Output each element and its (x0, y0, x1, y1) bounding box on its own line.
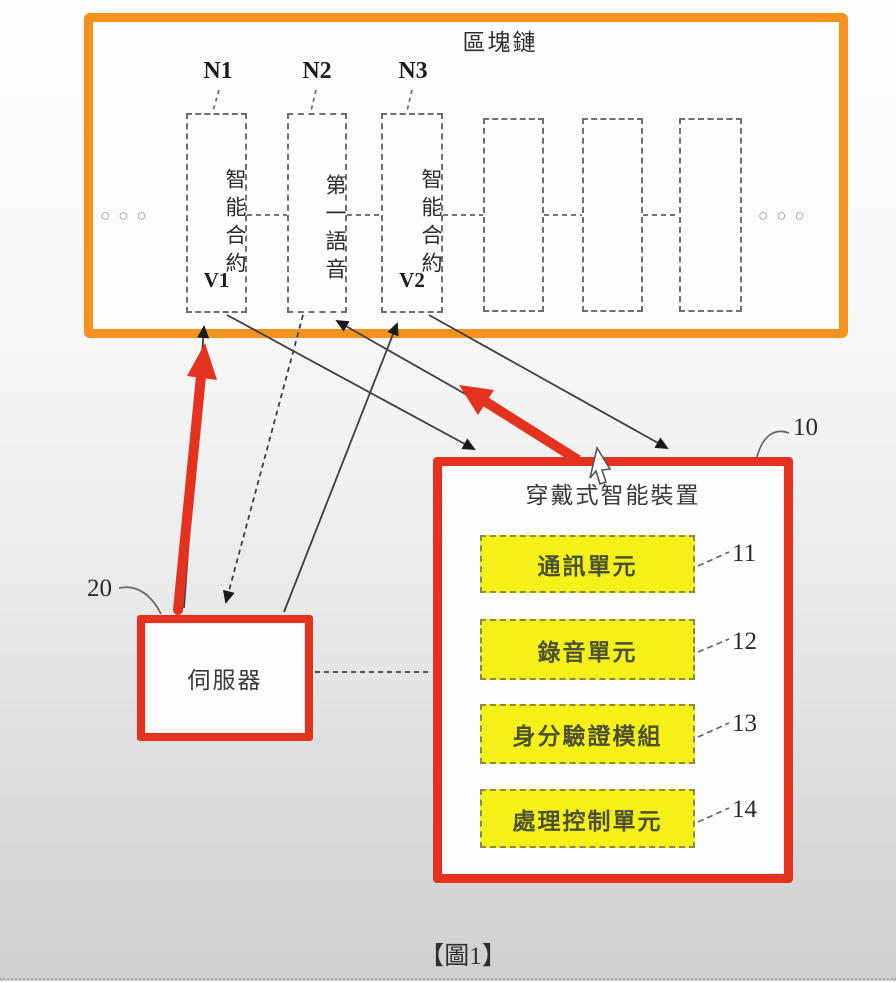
block-empty-1 (483, 118, 544, 312)
flow-device-to-n2 (337, 321, 576, 457)
block-n1-version: V1 (188, 268, 245, 293)
server-ref-20: 20 (87, 575, 112, 603)
chain-ellipsis-left: ○○○ (100, 206, 155, 226)
unit-communication: 通訊單元 (480, 535, 695, 593)
flow-server-to-n1 (184, 327, 204, 608)
unit-ref-14: 14 (732, 796, 757, 824)
node-label-n2: N2 (294, 58, 340, 85)
red-annotation-arrow-server-to-n1 (178, 343, 217, 610)
flow-n2-to-server (226, 315, 303, 602)
unit-ref-11: 11 (732, 540, 756, 568)
leader-10 (757, 431, 789, 457)
block-n3-version: V2 (383, 268, 441, 293)
figure-caption: 【圖1】 (408, 936, 518, 972)
server-box: 伺服器 (137, 615, 313, 741)
block-empty-3 (679, 118, 742, 312)
unit-ref-12: 12 (732, 628, 757, 656)
patent-figure: 區塊鏈 N1 N2 N3 智能合約 V1 第一語音 智能合約 V2 ○○○ ○○… (0, 0, 896, 981)
flow-server-to-n3 (284, 324, 397, 612)
leader-20 (119, 587, 161, 614)
unit-identity-verification: 身分驗證模組 (480, 704, 695, 764)
block-n2-first-voice: 第一語音 (287, 113, 347, 313)
wearable-device-title: 穿戴式智能裝置 (433, 476, 793, 510)
unit-processing-control: 處理控制單元 (480, 789, 695, 848)
red-annotation-arrow-device-to-chain (459, 385, 578, 460)
device-ref-10: 10 (793, 414, 818, 442)
chain-ellipsis-right: ○○○ (758, 206, 813, 226)
unit-recording: 錄音單元 (480, 619, 695, 680)
block-n1-smart-contract-v1: 智能合約 V1 (186, 113, 247, 313)
block-n3-smart-contract-v2: 智能合約 V2 (381, 113, 443, 313)
node-label-n3: N3 (390, 58, 436, 85)
block-n2-text: 第一語音 (289, 149, 345, 311)
unit-ref-13: 13 (732, 710, 757, 738)
block-empty-2 (582, 118, 643, 312)
node-label-n1: N1 (195, 58, 241, 85)
blockchain-title: 區塊鏈 (420, 23, 580, 57)
